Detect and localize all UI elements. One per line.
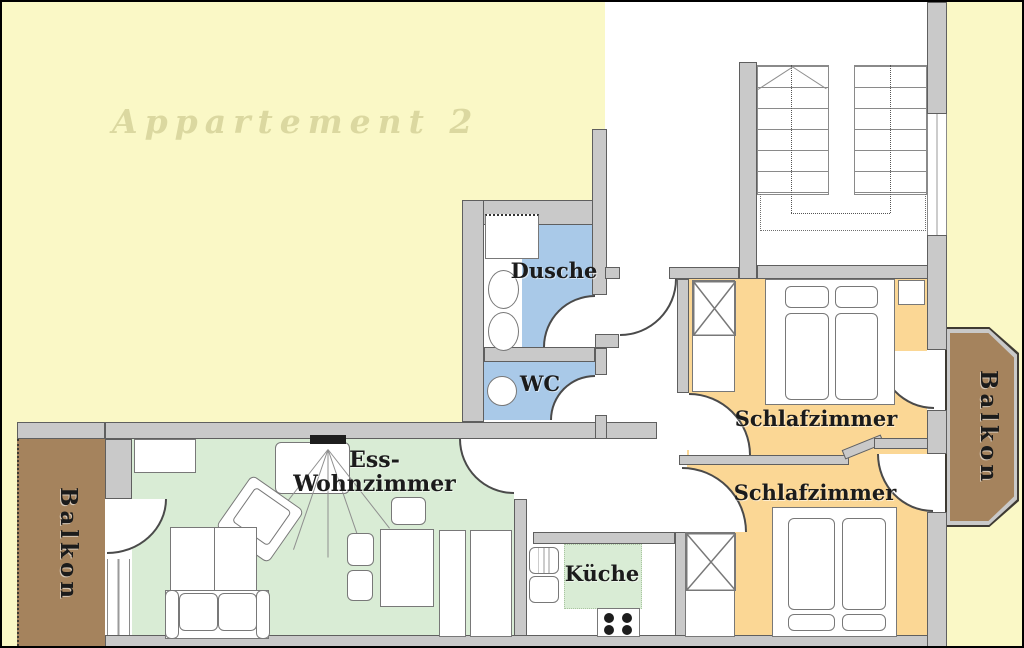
stove-burner: [604, 625, 614, 635]
room-label-wohnzimmer-line1: Ess-: [292, 448, 457, 472]
room-label-dusche: Dusche: [508, 259, 600, 282]
wall: [927, 410, 947, 454]
wall: [757, 265, 947, 279]
staircase-walkline-right: [890, 65, 891, 213]
sideboard: [134, 439, 196, 473]
pillow: [835, 286, 878, 308]
room-label-wc: WC: [514, 372, 566, 395]
staircase-walkline-bottom: [791, 213, 890, 214]
wall: [514, 499, 527, 648]
yellow-strip-right-edge: [947, 2, 1024, 648]
window-livingroom-left: [107, 559, 130, 637]
shower-tray: [485, 214, 539, 259]
apartment-title: Appartement 2: [112, 102, 542, 141]
couch-cushion: [218, 593, 257, 631]
dining-chair: [391, 497, 426, 525]
kitchen-sink-drainer: [529, 547, 559, 574]
cabinet: [470, 530, 512, 637]
balkon-left: Balkon: [17, 439, 105, 648]
room-label-wohnzimmer-line2: Wohnzimmer: [292, 472, 457, 496]
wall: [739, 62, 757, 279]
yellow-area-left-low: [2, 200, 464, 422]
stove-burner: [622, 625, 632, 635]
balkon-left-label: Balkon: [45, 467, 81, 622]
toilet: [487, 376, 517, 406]
dining-chair: [347, 533, 374, 566]
wall-entry-jamb: [605, 267, 620, 279]
wall: [669, 267, 739, 279]
stove-burner: [622, 613, 632, 623]
staircase-walkline-left: [791, 65, 792, 213]
wall: [595, 348, 607, 375]
mattress: [835, 313, 878, 400]
sink: [488, 312, 519, 351]
pillow: [785, 286, 829, 308]
double-bed: [765, 279, 895, 405]
wall: [533, 532, 675, 544]
room-label-kueche: Küche: [558, 562, 646, 585]
kitchen-sink-basin: [529, 576, 559, 603]
double-bed: [772, 507, 897, 637]
stove: [597, 608, 640, 637]
wall-bedroom-divider-right: [874, 438, 929, 449]
dining-chair: [347, 570, 373, 601]
wall: [927, 2, 947, 114]
couch-cushion: [179, 593, 218, 631]
wall: [595, 415, 607, 439]
couch-armrest: [256, 590, 270, 639]
wall: [462, 200, 484, 422]
apartment-floorplan: Appartement 2 Balkon Balkon: [0, 0, 1024, 648]
couch: [165, 590, 269, 639]
wall: [105, 422, 657, 439]
wall: [17, 422, 105, 439]
stove-burner: [604, 613, 614, 623]
balkon-right: Balkon: [945, 327, 1019, 527]
window-stairwell: [927, 114, 947, 235]
wall: [927, 512, 947, 648]
room-label-schlafzimmer1: Schlafzimmer: [732, 407, 900, 430]
mattress: [788, 518, 835, 610]
wall-bedroom-divider: [679, 455, 849, 465]
wall: [105, 439, 132, 499]
wall-dusche-jamb: [595, 334, 619, 348]
balkon-right-label: Balkon: [965, 354, 1001, 502]
tv: [310, 435, 346, 444]
mattress: [785, 313, 829, 400]
yellow-strip-left-edge: [2, 422, 17, 648]
wardrobe: [685, 532, 735, 637]
room-label-wohnzimmer: Ess- Wohnzimmer: [292, 448, 457, 496]
wall: [677, 279, 689, 393]
nightstand: [898, 280, 925, 305]
mattress: [842, 518, 886, 610]
couch-armrest: [165, 590, 179, 639]
pillow: [788, 614, 835, 631]
wardrobe: [692, 280, 735, 392]
cabinet: [439, 530, 466, 637]
wall: [927, 235, 947, 350]
pillow: [842, 614, 886, 631]
room-label-schlafzimmer2: Schlafzimmer: [730, 481, 900, 504]
door-arc-entrance: [620, 279, 677, 336]
dining-table: [380, 529, 434, 607]
